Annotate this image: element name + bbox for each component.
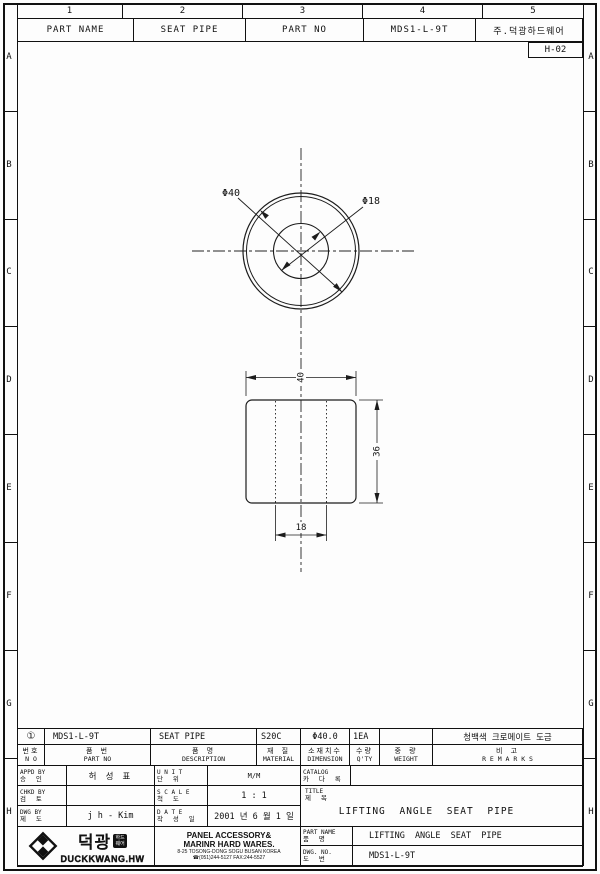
col-eng: DIMENSION [307, 755, 342, 763]
chkd-value-cell [67, 786, 155, 806]
dim-height-label: 36 [373, 446, 383, 457]
col-eng: PART NO [84, 755, 111, 763]
company-badge: 하드웨어 [113, 834, 127, 848]
col-qty: 수량Q'TY [350, 745, 380, 766]
col-description: 품 명DESCRIPTION [151, 745, 257, 766]
label-kor: 승 인 [20, 776, 45, 783]
dim-width-label: 40 [297, 372, 307, 383]
scale-value: 1 : 1 [241, 791, 267, 801]
col-kor: 중 량 [394, 747, 417, 755]
label-kor: 제 도 [20, 816, 45, 823]
arrowhead [333, 283, 342, 292]
badge-text: 웨어 [116, 841, 125, 847]
col-eng: R E M A R K S [482, 755, 533, 763]
parts-list-row: ① MDS1-L-9T SEAT PIPE S20C Φ40.0 1EA 청백색… [18, 729, 582, 745]
dia-bore-leader [282, 207, 363, 270]
dwgby-label-cell: DWG BY제 도 [18, 806, 67, 827]
arrowhead [246, 375, 256, 380]
unit-value: M/M [248, 772, 261, 780]
parts-description-cell: SEAT PIPE [151, 729, 257, 745]
dia-bore-label: Φ18 [362, 196, 380, 207]
dwgby-value-cell: j h - Kim [67, 806, 155, 827]
parts-dimension-cell: Φ40.0 [301, 729, 350, 745]
scale-value-cell: 1 : 1 [208, 786, 301, 806]
duckkwang-diamond-icon [28, 830, 58, 862]
company-info-cell: PANEL ACCESSORY& MARINR HARD WARES. 8-25… [155, 827, 301, 865]
part-name-value: LIFTING ANGLE SEAT PIPE [369, 831, 502, 841]
title-block: ① MDS1-L-9T SEAT PIPE S20C Φ40.0 1EA 청백색… [17, 728, 583, 866]
label-kor: 작 성 일 [157, 816, 198, 823]
label-kor: 단 위 [157, 776, 182, 783]
arrowhead [375, 400, 380, 410]
company-line: PANEL ACCESSORY& [187, 831, 271, 840]
company-korean-name: 덕광 [78, 828, 111, 853]
parts-remarks-cell: 청백색 크로메이트 도금 [433, 729, 582, 745]
col-kor: 품 번 [86, 747, 109, 755]
company-line: MARINR HARD WARES. [183, 840, 274, 849]
drawing-title: LIFTING ANGLE SEAT PIPE [301, 806, 552, 817]
catalog-label-cell: CATALOG카 다 록 [301, 766, 351, 786]
arrowhead [282, 262, 291, 271]
unit-value-cell: M/M [208, 766, 301, 786]
col-dimension: 소재치수DIMENSION [301, 745, 350, 766]
arrowhead [346, 375, 356, 380]
arrowhead [260, 210, 269, 219]
col-kor: 비 고 [496, 747, 519, 755]
dwg-no-value: MDS1-L-9T [369, 851, 415, 861]
item-number: ① [27, 731, 36, 742]
qty-value: 1EA [353, 732, 368, 742]
col-eng: DESCRIPTION [182, 755, 225, 763]
drawing-sheet: 1 2 3 4 5 PART NAME SEAT PIPE PART NO MD… [0, 0, 600, 874]
label-kor: 검 토 [20, 796, 45, 803]
col-remarks: 비 고R E M A R K S [433, 745, 582, 766]
material-value: S20C [261, 732, 281, 742]
unit-label-cell: U N I T단 위 [155, 766, 208, 786]
dim-bore-label: 18 [296, 523, 307, 533]
label-kor: 품 명 [303, 836, 336, 843]
title-cell: TITLE제 목 LIFTING ANGLE SEAT PIPE [301, 786, 582, 827]
date-value: 2001 년 6 월 1 일 [214, 810, 294, 822]
col-eng: N O [25, 755, 37, 763]
arrowhead [276, 533, 286, 538]
company-phone: ☎(051)244-5127 FAX:244-5527 [193, 855, 265, 861]
parts-partno-cell: MDS1-L-9T [45, 729, 151, 745]
col-kor: 번호 [23, 747, 40, 755]
part-no-value: MDS1-L-9T [53, 732, 99, 742]
label-kor: 척 도 [157, 796, 190, 803]
col-eng: WEIGHT [394, 755, 417, 763]
col-material: 재 질MATERIAL [257, 745, 301, 766]
parts-material-cell: S20C [257, 729, 301, 745]
parts-weight-cell [380, 729, 433, 745]
dimension-value: Φ40.0 [312, 732, 338, 742]
col-no: 번호N O [18, 745, 45, 766]
parts-no-cell: ① [18, 729, 45, 745]
parts-qty-cell: 1EA [350, 729, 380, 745]
parts-list-header-row: 번호N O 품 번PART NO 품 명DESCRIPTION 재 질MATER… [18, 745, 582, 766]
dwgno-value-cell: MDS1-L-9T [353, 846, 582, 865]
arrowhead [312, 232, 321, 241]
col-kor: 소재치수 [308, 747, 342, 755]
remarks-value: 청백색 크로메이트 도금 [463, 731, 551, 743]
company-row: 덕광 하드웨어 DUCKKWANG.HW PANEL ACCESSORY& MA… [18, 827, 582, 865]
chkd-dwg-title-rows: CHKD BY검 토 S C A L E척 도 1 : 1 DWG BY제 도 … [18, 786, 582, 827]
label-kor: 도 번 [303, 856, 332, 863]
date-label-cell: D A T E작 성 일 [155, 806, 208, 827]
col-weight: 중 량WEIGHT [380, 745, 433, 766]
appd-label-cell: APPD BY승 인 [18, 766, 67, 786]
dia-outer-label: Φ40 [222, 188, 240, 199]
catalog-value-cell [351, 766, 582, 786]
date-value-cell: 2001 년 6 월 1 일 [208, 806, 301, 827]
company-logo: 덕광 하드웨어 DUCKKWANG.HW [18, 827, 155, 865]
company-english-name: DUCKKWANG.HW [61, 854, 145, 864]
description-value: SEAT PIPE [159, 732, 205, 742]
partname-label-cell: PART NAME품 명 [301, 827, 353, 846]
scale-label-cell: S C A L E척 도 [155, 786, 208, 806]
label-kor: 제 목 [305, 795, 330, 802]
col-eng: MATERIAL [263, 755, 294, 763]
drafter-name: j h - Kim [87, 811, 133, 821]
approval-unit-row: APPD BY승 인 허 성 표 U N I T단 위 M/M CATALOG카… [18, 766, 582, 786]
chkd-label-cell: CHKD BY검 토 [18, 786, 67, 806]
approver-name: 허 성 표 [89, 770, 133, 782]
partname-value-cell: LIFTING ANGLE SEAT PIPE [353, 827, 582, 846]
col-eng: Q'TY [357, 755, 373, 763]
col-partno: 품 번PART NO [45, 745, 151, 766]
dwgno-label-cell: DWG. NO.도 번 [301, 846, 353, 865]
col-kor: 수량 [356, 747, 373, 755]
arrowhead [375, 493, 380, 503]
col-kor: 품 명 [192, 747, 215, 755]
appd-value-cell: 허 성 표 [67, 766, 155, 786]
arrowhead [317, 533, 327, 538]
label-kor: 카 다 록 [303, 776, 344, 783]
col-kor: 재 질 [267, 747, 290, 755]
